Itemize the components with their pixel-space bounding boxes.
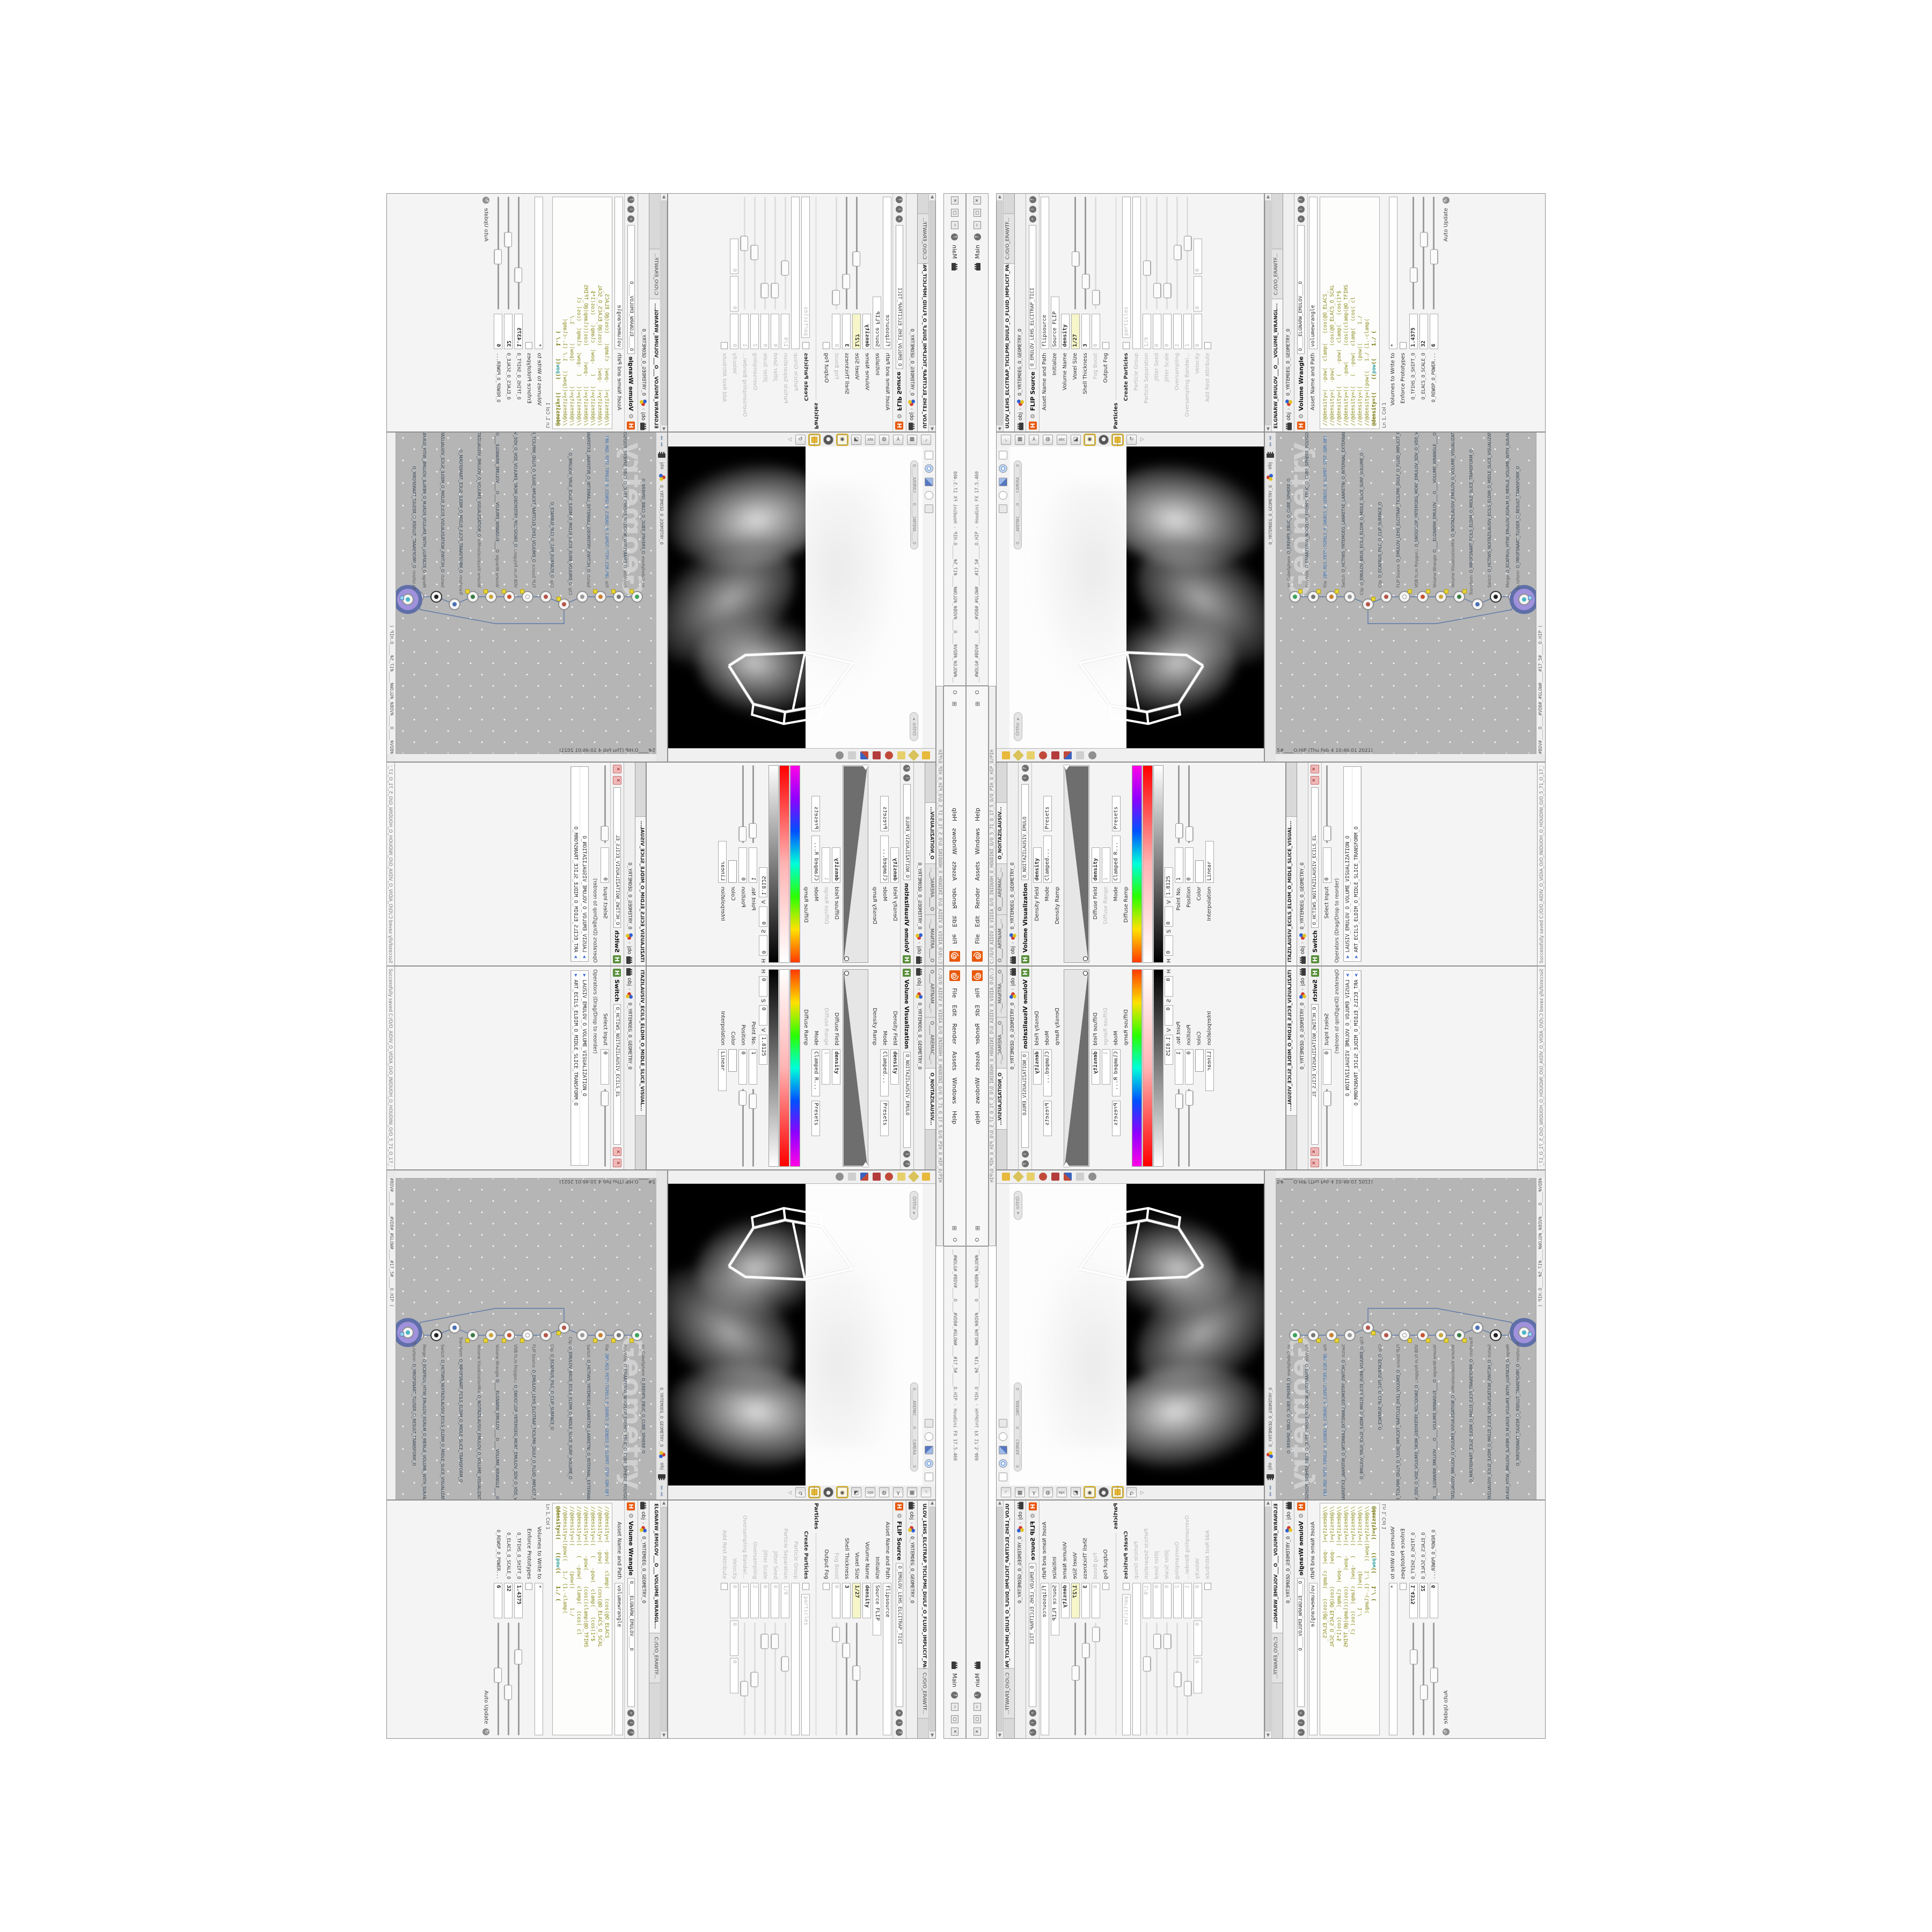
create-particles-checkbox[interactable] <box>802 1583 809 1590</box>
flag-icon[interactable] <box>1064 1173 1072 1181</box>
gold-pin-icon[interactable] <box>1002 751 1010 759</box>
position-slider[interactable] <box>742 1089 744 1167</box>
v-field[interactable]: 1.8125 <box>759 867 767 897</box>
network-breadcrumb-obj[interactable]: obj <box>659 1462 664 1470</box>
nav-arrows[interactable]: ⬆⬇ <box>1268 1484 1272 1496</box>
node-file[interactable]: FileJBO.M23.PETS:TGPOLS_O_5OURC5_O_GENUS… <box>1326 1329 1337 1341</box>
voxel-size-slider[interactable] <box>1074 196 1076 309</box>
scale-param-slider[interactable] <box>1423 1623 1424 1736</box>
switch-node-name-field[interactable]: O_HCTIWS_NOITAZILAUSIV_ECILS_EL <box>613 787 621 928</box>
s-field[interactable]: 0 <box>759 906 767 927</box>
grey-sphere-icon[interactable] <box>836 1173 844 1181</box>
pane-tab-path[interactable]: C:/O/O_ERAWTF... <box>918 1669 928 1719</box>
particle-separation-field[interactable]: 1/9 <box>781 1583 790 1619</box>
asset-name-field[interactable]: flipsource <box>883 196 892 349</box>
particle-separation-slider[interactable] <box>785 196 786 309</box>
view-cube-icon[interactable] <box>925 478 933 486</box>
jitter-scale-slider[interactable] <box>1166 1623 1168 1736</box>
info-icon[interactable]: i <box>1298 206 1305 213</box>
density-field-value[interactable]: density <box>1033 1049 1042 1085</box>
menu-windows[interactable]: Windows <box>974 828 981 854</box>
menu-assets[interactable]: Assets <box>952 1051 958 1071</box>
s-field[interactable]: 0 <box>1165 906 1173 927</box>
node-clip-2[interactable]: ClipO_ECAFRUS_PILC_O_CLIP_SURFACE_O <box>1380 591 1392 603</box>
shift-param-slider[interactable] <box>518 196 519 309</box>
node-vdb-from-polygons[interactable]: VDB from PolygonsO_SNOGYLOP_YRTEMOEG_MOR… <box>503 1329 515 1341</box>
network-breadcrumb-geometry[interactable]: O_YRTEMOEG_O_GEOMETRY_O <box>1268 485 1273 545</box>
density-mode-dropdown[interactable]: Clamped... <box>1043 836 1052 883</box>
delete-icon[interactable]: ✕ <box>1311 1147 1319 1156</box>
info-icon[interactable]: i <box>1298 1719 1305 1726</box>
search-icon[interactable]: ⌕ <box>1029 215 1036 222</box>
node-flip-source[interactable]: FLIP SourceO_EMULOV_LEHS_ELCITRAP_TICILP… <box>522 1329 533 1341</box>
view-mode-pill[interactable]: Ortho ▾ <box>1014 712 1022 741</box>
help-icon[interactable]: ? <box>896 1729 903 1736</box>
density-presets-button[interactable]: Presets <box>1043 796 1052 831</box>
uv-sphere-icon[interactable]: ◍ <box>1043 435 1053 445</box>
orbit-icon[interactable]: ↻ <box>795 1488 806 1498</box>
window-grid-icon[interactable]: ⊞ <box>974 1226 981 1231</box>
gear-icon[interactable]: ⚙ <box>628 413 635 419</box>
point-no-slider[interactable] <box>1178 765 1180 843</box>
operator-item[interactable]: ➤LAUSIV_EMULOV_O_VOLUME_VISUALIZATION_O <box>1344 767 1352 961</box>
file-path[interactable]: C:/O/O_AIDIV_O_VIDIA_O/O_INIDUOH_O_HOUDI… <box>936 966 943 1246</box>
node-vdb-from-polygons[interactable]: VDB from PolygonsO_SNOGYLOP_YRTEMOEG_MOR… <box>1417 1329 1429 1341</box>
volviz-node-name-field[interactable]: O_NOITAZILAUSIV_EMULO <box>903 1052 911 1148</box>
pane-tab-flip[interactable]: ULOV_LEHS_ELCITRAP_TICILPMI_DIULF_O_FLUI… <box>918 263 928 432</box>
node-flip-source[interactable]: FLIP SourceO_EMULOV_LEHS_ELCITRAP_TICILP… <box>1399 1329 1410 1341</box>
search-icon[interactable]: ⌕ <box>628 215 635 222</box>
output-fog-checkbox[interactable] <box>1102 342 1109 349</box>
gear-icon[interactable]: ⚙ <box>628 1513 635 1519</box>
pane-tab-flip[interactable]: ULOV_LEHS_ELCITRAP_TICILPMI_DIULF_O_FLUI… <box>1004 263 1014 432</box>
camera-pill[interactable]: O____AREMAC____O____CAMERA____O <box>1014 460 1022 550</box>
shift-param-slider[interactable] <box>1413 196 1414 309</box>
window-close-button[interactable]: ✕ <box>951 196 958 204</box>
volumes-to-write-field[interactable]: * <box>535 1583 544 1736</box>
position-field[interactable]: 0 <box>1185 847 1194 883</box>
menu-assets[interactable]: Assets <box>974 861 981 881</box>
gold-pin-icon[interactable] <box>1002 1173 1010 1181</box>
particles-field[interactable]: particles <box>1122 196 1131 338</box>
menu-windows[interactable]: Windows <box>974 1078 981 1104</box>
corner-pin-icon[interactable]: ▦ <box>907 1488 917 1498</box>
quad-view-icon[interactable] <box>809 435 819 445</box>
ease-curve-icon[interactable]: ◟ <box>1001 1488 1011 1498</box>
pane-tab-path[interactable]: C:/O/O_ERAWTF... <box>1272 1634 1283 1684</box>
pane-tab-camera[interactable]: O____AREMAC__... <box>996 1018 1007 1069</box>
delete-icon[interactable]: ✕ <box>613 776 621 785</box>
breadcrumb-obj[interactable]: obj <box>1300 946 1306 954</box>
window-grid-icon[interactable]: ⊞ <box>974 701 981 706</box>
pane-tab-camera[interactable]: O____AREMAC__... <box>925 863 936 915</box>
quad-view-icon[interactable] <box>1113 435 1123 445</box>
oversampling-bandwidth-field[interactable]: 1 <box>1183 313 1192 349</box>
info-icon[interactable]: i <box>1022 1151 1029 1158</box>
hue-ramp-bar[interactable] <box>1132 765 1142 963</box>
pin-icon[interactable] <box>925 504 933 513</box>
gold-pin-icon[interactable] <box>922 751 930 759</box>
node-transform-slice[interactable]: TransformO_MROFSNART_ECILS_ELDIM_O_MIDLE… <box>449 598 460 610</box>
jitter-scale-field[interactable]: 0 <box>1163 1583 1172 1619</box>
shell-thickness-slider[interactable] <box>1085 196 1086 309</box>
select-input-slider[interactable] <box>1326 765 1328 843</box>
info-icon[interactable]: i <box>1029 206 1036 213</box>
view-mode-pill[interactable]: Ortho ▾ <box>910 1191 918 1220</box>
density-ramp-widget[interactable] <box>1064 765 1089 963</box>
menu-edit[interactable]: Edit <box>952 1005 958 1016</box>
info-icon[interactable]: i <box>896 1719 903 1726</box>
wrangle-node-name-field[interactable]: O____ELGNARW_EMULOV____O <box>1297 1578 1305 1707</box>
network-scrollbar[interactable] <box>396 753 656 762</box>
window-minimize-button[interactable]: ─ <box>951 221 958 229</box>
breadcrumb-geometry[interactable]: O_YRTEMOEG_O_GEOMETRY_O <box>1286 1536 1291 1604</box>
interpolation-dropdown[interactable]: Linear <box>719 1049 727 1091</box>
voxel-size-field[interactable]: 1/27 <box>1071 1583 1080 1619</box>
quad-view-icon[interactable] <box>809 1488 819 1498</box>
add-rest-attribute-checkbox[interactable] <box>1204 342 1211 349</box>
nav-arrows[interactable]: ⬆⬇ <box>659 1484 664 1496</box>
search-icon[interactable]: ⌕ <box>896 1710 903 1717</box>
view-mode-pill[interactable]: Ortho ▾ <box>910 712 918 741</box>
vex-code-editor[interactable]: //@density=( -pow( clamp( (cos(@O_ELACS_… <box>1320 1503 1380 1736</box>
gear-icon[interactable]: ⚙ <box>896 413 903 419</box>
node-switch-geo[interactable]: SwitchO_HCTIWS_YRTEMOEG_LANRETXE_LANRETN… <box>1344 591 1356 603</box>
node-volviz-mix[interactable]: Volume VisualizationMixO_NOITAZILAUSIV_E… <box>1453 591 1465 603</box>
orbit-icon[interactable]: ↻ <box>795 435 806 445</box>
voxel-size-slider[interactable] <box>1074 1623 1076 1736</box>
node-volviz-mix[interactable]: Volume VisualizationMixO_NOITAZILAUSIV_E… <box>467 1329 479 1341</box>
jitter-seed-slider[interactable] <box>1156 196 1158 309</box>
menu-edit[interactable]: Edit <box>974 916 981 927</box>
fog-boost-field[interactable]: 0 <box>832 1583 841 1619</box>
jitter-scale-slider[interactable] <box>1166 196 1168 309</box>
info-icon[interactable]: i <box>1029 1719 1036 1726</box>
help-icon[interactable]: ? <box>974 1692 981 1699</box>
breadcrumb-geometry[interactable]: O_YRTEMOEG_O_GEOMETRY_O <box>909 328 914 396</box>
hue-ramp-bar[interactable] <box>790 765 800 963</box>
help-icon[interactable]: ? <box>628 196 635 203</box>
window-close-button[interactable]: ✕ <box>974 196 981 204</box>
node-switch-visualization[interactable]: SwitchO_HCTIWS_NOITAZILAUSIV_ECILS_ELDIM… <box>1490 591 1502 603</box>
auto-update-selector[interactable]: Auto Update <box>483 208 489 241</box>
breadcrumb-geometry[interactable]: O_YRTEMOEG_O_GEOMETRY_O <box>1010 862 1015 930</box>
diffuse-presets-button[interactable]: Presets <box>1112 1101 1121 1136</box>
oversampling-slider[interactable] <box>1176 1623 1178 1736</box>
target-icon[interactable] <box>925 491 933 500</box>
output-fog-checkbox[interactable] <box>823 342 830 349</box>
shelf-tab-main[interactable]: Main <box>974 1673 981 1687</box>
velocity-x-field[interactable]: 0 <box>730 1583 739 1619</box>
node-volviz-mix[interactable]: Volume VisualizationMixO_NOITAZILAUSIV_E… <box>1453 1329 1465 1341</box>
menu-render[interactable]: Render <box>952 1023 958 1044</box>
tripod-icon[interactable]: ⅄ <box>1029 435 1039 445</box>
scale-param-field[interactable]: 32 <box>1419 313 1428 349</box>
point-no-slider[interactable] <box>752 1089 754 1167</box>
scale-param-slider[interactable] <box>1423 196 1424 309</box>
toolbar-overflow-arrow[interactable]: ▷ <box>1140 1490 1144 1495</box>
volume-name-field[interactable]: density <box>863 313 872 349</box>
node-switch-geo[interactable]: SwitchO_HCTIWS_YRTEMOEG_LANRETXE_LANRETN… <box>576 1329 588 1341</box>
oversampling-bandwidth-field[interactable]: 1 <box>741 313 749 349</box>
node-cubesphere[interactable]: ao_CubeSphereO_EREHPS_EBUC_O_CUBE_SPHERE… <box>631 591 643 603</box>
gold-diamond-icon[interactable] <box>1013 1171 1024 1182</box>
menu-assets[interactable]: Assets <box>952 861 958 881</box>
grey-sphere-icon[interactable] <box>836 751 844 759</box>
voxel-size-field[interactable]: 1/27 <box>853 313 861 349</box>
viewport-render-area[interactable]: O____AREMAC____O____CAMERA____O Ortho ▾ <box>668 1183 923 1485</box>
breadcrumb-obj[interactable]: obj <box>627 946 633 954</box>
corner-pin-icon[interactable]: ▦ <box>1015 435 1025 445</box>
velocity-y-field[interactable]: 0 <box>730 276 739 311</box>
color-swatch[interactable] <box>729 1049 737 1072</box>
network-graph-area[interactable]: Geometry ao_CubeSphereO_EREHPS_EBUC_O_CU… <box>396 1178 656 1499</box>
select-input-field[interactable]: 0 <box>1323 1049 1331 1085</box>
oversampling-field[interactable]: 2 <box>1173 313 1182 349</box>
node-switch-visualization[interactable]: SwitchO_HCTIWS_NOITAZILAUSIV_ECILS_ELDIM… <box>1490 1329 1502 1341</box>
breadcrumb-geometry[interactable]: O_YRTEMOEG_O_GEOMETRY_O <box>909 1536 914 1604</box>
menu-assets[interactable]: Assets <box>974 1051 981 1071</box>
diffuse-mode-dropdown[interactable]: Clamped R... <box>812 1049 821 1096</box>
orbit-rings-icon[interactable] <box>999 1459 1007 1468</box>
node-clip-1[interactable]: ClipO_EMULOV_BRUS_ECILS_ELDIM_O_MIDLE_SL… <box>1362 598 1374 610</box>
render-eye-icon[interactable]: ◉ <box>837 435 847 445</box>
point-no-field[interactable]: 1 <box>1175 1049 1183 1085</box>
window-grid-icon[interactable]: ⊞ <box>952 1226 958 1231</box>
value-ramp-bar[interactable] <box>1153 765 1163 963</box>
red-gears-icon[interactable] <box>885 1173 893 1181</box>
network-breadcrumb-obj[interactable]: obj <box>1268 1462 1273 1470</box>
saturation-ramp-bar[interactable] <box>779 765 789 963</box>
help-icon[interactable]: ? <box>1029 1729 1036 1736</box>
jitter-seed-slider[interactable] <box>774 196 776 309</box>
point-no-field[interactable]: 1 <box>1175 847 1183 883</box>
node-result-transform[interactable]: TransformO_MROFSNART_TLUSER_O_RESULT_TRA… <box>402 594 414 605</box>
node-volume-wrangle[interactable]: Volume WrangleO____ELGNARW_EMULOV____O__… <box>485 1329 497 1341</box>
particles-field[interactable]: particles <box>802 1594 810 1736</box>
velocity-y-field[interactable]: 0 <box>1194 1621 1202 1656</box>
node-clip-1[interactable]: ClipO_EMULOV_BRUS_ECILS_ELDIM_O_MIDLE_SL… <box>1362 1322 1374 1334</box>
abc-label-icon[interactable]: abc <box>1057 1488 1067 1498</box>
file-path[interactable]: C:/O/O_AIDIV_O_VIDIA_O/O_INIDUOH_O_HOUDI… <box>989 966 996 1246</box>
help-icon[interactable]: ? <box>904 765 911 772</box>
help-icon[interactable]: ? <box>952 1692 958 1699</box>
operator-item[interactable]: ➤LAUSIV_EMULOV_O_VOLUME_VISUALIZATION_O <box>1344 971 1352 1165</box>
velocity-y-field[interactable]: 0 <box>1194 276 1202 311</box>
camera-pill[interactable]: O____AREMAC____O____CAMERA____O <box>910 460 918 550</box>
node-volviz-mix[interactable]: Volume VisualizationMixO_NOITAZILAUSIV_E… <box>467 591 479 603</box>
menu-help[interactable]: Help <box>974 1111 981 1124</box>
oversampling-bandwidth-field[interactable]: 1 <box>741 1583 749 1619</box>
view-cube-icon[interactable] <box>925 1446 933 1454</box>
oversampling-bandwidth-field[interactable]: 1 <box>1183 1583 1192 1619</box>
saturation-ramp-bar[interactable] <box>779 969 789 1167</box>
diffuse-range-value[interactable]: 1 <box>822 1049 831 1085</box>
node-result-transform[interactable]: TransformO_MROFSNART_TLUSER_O_RESULT_TRA… <box>1518 1327 1530 1338</box>
help-icon[interactable]: ? <box>1298 1729 1305 1736</box>
network-breadcrumb-geometry[interactable]: O_YRTEMOEG_O_GEOMETRY_O <box>1268 1387 1273 1447</box>
pane-tab-mantra[interactable]: O____ARTNAM__... <box>925 914 936 966</box>
target-icon[interactable] <box>999 491 1007 500</box>
breadcrumb-geometry[interactable]: O_YRTEMOEG_O_GEOMETRY_O <box>1286 328 1291 396</box>
gear-icon[interactable]: ⚙ <box>1029 1513 1036 1519</box>
ease-curve-icon[interactable]: ◟ <box>921 1488 931 1498</box>
node-polywire[interactable]: PolyWireO_EMARFERIW_NOGYLOP_EREHPS_EBUC_… <box>613 1329 625 1341</box>
view-cube-icon[interactable] <box>999 1446 1007 1454</box>
particle-group-field[interactable] <box>1132 1583 1141 1736</box>
file-path[interactable]: C:/O/O_AIDIV_O_VIDIA_O/O_INIDUOH_O_HOUDI… <box>989 686 996 966</box>
node-transform-slice[interactable]: TransformO_MROFSNART_ECILS_ELDIM_O_MIDLE… <box>1472 598 1483 610</box>
select-box-icon[interactable] <box>925 1473 933 1481</box>
node-clip-1[interactable]: ClipO_EMULOV_BRUS_ECILS_ELDIM_O_MIDLE_SL… <box>558 1322 570 1334</box>
breadcrumb-obj[interactable]: obj <box>1010 978 1016 986</box>
breadcrumb-obj[interactable]: obj <box>1286 1512 1292 1520</box>
create-particles-checkbox[interactable] <box>1123 342 1130 349</box>
fog-boost-field[interactable]: 0 <box>1092 313 1100 349</box>
volviz-node-name-field[interactable]: O_NOITAZILAUSIV_EMULO <box>903 784 911 881</box>
red-gears-icon[interactable] <box>1039 1173 1047 1181</box>
pane-tab-camera[interactable]: O____AREMAC__... <box>925 1018 936 1069</box>
density-mode-dropdown[interactable]: Clamped... <box>881 1049 889 1096</box>
pane-tab-visualization[interactable]: O_NOITAZILAUSIV... <box>996 802 1007 863</box>
operator-item[interactable]: ➤ART_ECILS_ELDIM_O_MIDLE_SLICE_TRANSFORM… <box>571 971 580 1165</box>
snapshot-icon[interactable]: ◪ <box>851 1488 861 1498</box>
node-file[interactable]: FileJBO.M23.PETS:TGPOLS_O_5OURC5_O_GENUS… <box>595 591 606 603</box>
vex-code-editor[interactable]: //@density=( -pow( clamp( (cos(@O_ELACS_… <box>552 1503 612 1736</box>
fog-boost-slider[interactable] <box>1095 1623 1096 1736</box>
density-presets-button[interactable]: Presets <box>881 1101 889 1136</box>
network-graph-area[interactable]: Geometry ao_CubeSphereO_EREHPS_EBUC_O_CU… <box>1276 433 1536 754</box>
select-input-field[interactable]: 0 <box>601 1049 610 1085</box>
delete-icon[interactable]: ✕ <box>1311 1159 1319 1167</box>
select-box-icon[interactable] <box>999 1473 1007 1481</box>
particle-separation-slider[interactable] <box>1146 1623 1147 1736</box>
menu-file[interactable]: File <box>974 988 981 998</box>
density-mode-dropdown[interactable]: Clamped... <box>881 836 889 883</box>
orbit-rings-icon[interactable] <box>925 1459 933 1468</box>
h-field[interactable]: 0 <box>1165 976 1173 997</box>
node-flip-source[interactable]: FLIP SourceO_EMULOV_LEHS_ELCITRAP_TICILP… <box>1399 591 1410 603</box>
menu-windows[interactable]: Windows <box>952 828 958 854</box>
help-icon[interactable]: ? <box>904 1160 911 1167</box>
density-field-value[interactable]: density <box>1033 847 1042 883</box>
particle-separation-field[interactable]: 1/9 <box>1143 313 1151 349</box>
node-result-transform[interactable]: TransformO_MROFSNART_TLUSER_O_RESULT_TRA… <box>402 1327 414 1338</box>
power-param-slider[interactable] <box>1433 196 1435 309</box>
oversampling-bandwidth-slider[interactable] <box>1187 196 1188 309</box>
fog-boost-slider[interactable] <box>836 196 837 309</box>
oversampling-field[interactable]: 2 <box>751 313 759 349</box>
node-flip-source[interactable]: FLIP SourceO_EMULOV_LEHS_ELCITRAP_TICILP… <box>522 591 533 603</box>
saturation-ramp-bar[interactable] <box>1143 969 1153 1167</box>
node-switch-geo[interactable]: SwitchO_HCTIWS_YRTEMOEG_LANRETXE_LANRETN… <box>576 591 588 603</box>
enforce-prototypes-checkbox[interactable] <box>1400 342 1407 349</box>
target-icon[interactable] <box>925 1432 933 1441</box>
oversampling-slider[interactable] <box>754 1623 756 1736</box>
red-camera-icon[interactable] <box>873 1173 881 1181</box>
node-clip-2[interactable]: ClipO_ECAFRUS_PILC_O_CLIP_SURFACE_O <box>540 591 552 603</box>
shell-thickness-field[interactable]: 3 <box>843 1583 851 1619</box>
create-particles-checkbox[interactable] <box>802 342 809 349</box>
node-switch-visualization[interactable]: SwitchO_HCTIWS_NOITAZILAUSIV_ECILS_ELDIM… <box>430 591 442 603</box>
pane-scrollbar[interactable]: ◀▶ <box>928 193 936 432</box>
help-icon[interactable]: ? <box>952 233 958 240</box>
pin-icon[interactable] <box>999 1419 1007 1428</box>
file-path[interactable]: C:/O/O_AIDIV_O_VIDIA_O/O_INIDUOH_O_HOUDI… <box>936 686 943 966</box>
diffuse-mode-dropdown[interactable]: Clamped R... <box>1112 836 1121 883</box>
shift-param-field[interactable]: 1.4375 <box>1409 313 1418 349</box>
delete-icon[interactable]: ✕ <box>613 1147 621 1156</box>
ease-curve-icon[interactable]: ◟ <box>1001 435 1011 445</box>
info-icon[interactable]: i <box>628 1719 635 1726</box>
pane-tab-wrangle[interactable]: ELGNARW_EMULOV___O___VOLUME_WRANGL... <box>1272 299 1283 433</box>
scale-param-field[interactable]: 32 <box>1419 1583 1428 1619</box>
window-maximize-button[interactable]: ▢ <box>951 1715 958 1723</box>
density-presets-button[interactable]: Presets <box>1043 1101 1052 1136</box>
add-rest-attribute-checkbox[interactable] <box>721 1583 728 1590</box>
node-volume-wrangle[interactable]: Volume WrangleO____ELGNARW_EMULOV____O__… <box>485 591 497 603</box>
info-icon[interactable]: i <box>904 1151 911 1158</box>
h-field[interactable]: 0 <box>759 935 767 956</box>
particles-field[interactable]: particles <box>1122 1594 1131 1736</box>
tripod-icon[interactable]: ⅄ <box>1029 1488 1039 1498</box>
pane-tab-visualization[interactable]: O_NOITAZILAUSIV... <box>925 802 936 863</box>
window-grid-icon[interactable]: ⊞ <box>952 701 958 706</box>
delete-icon[interactable]: ✕ <box>613 1159 621 1167</box>
dark-sphere-icon[interactable]: ● <box>823 1488 833 1498</box>
breadcrumb-obj[interactable]: obj <box>1010 946 1016 954</box>
oversampling-bandwidth-slider[interactable] <box>744 1623 745 1736</box>
gear-icon[interactable]: ⚙ <box>896 1513 903 1519</box>
abc-label-icon[interactable]: abc <box>865 1488 875 1498</box>
diffuse-range-value[interactable]: 1 <box>822 847 831 883</box>
yellow-folder-icon[interactable] <box>897 751 905 759</box>
density-ramp-widget[interactable] <box>843 969 868 1167</box>
breadcrumb-obj[interactable]: obj <box>1286 412 1292 420</box>
shelf-tab-main[interactable]: Main <box>952 245 958 259</box>
h-field[interactable]: 0 <box>759 976 767 997</box>
menu-file[interactable]: File <box>974 934 981 944</box>
interpolation-dropdown[interactable]: Linear <box>719 841 727 883</box>
pane-tab-flip[interactable]: ULOV_LEHS_ELCITRAP_TICILPMI_DIULF_O_FLUI… <box>918 1500 928 1669</box>
node-polywire[interactable]: PolyWireO_EMARFERIW_NOGYLOP_EREHPS_EBUC_… <box>1307 591 1319 603</box>
camera-pill[interactable]: O____AREMAC____O____CAMERA____O <box>910 1382 918 1472</box>
red-camera-icon[interactable] <box>1051 751 1059 759</box>
jitter-scale-field[interactable]: 0 <box>761 313 770 349</box>
shell-thickness-slider[interactable] <box>1085 1623 1086 1736</box>
breadcrumb-obj[interactable]: obj <box>627 978 633 986</box>
velocity-z-field[interactable]: 0 <box>730 1658 739 1694</box>
output-fog-checkbox[interactable] <box>1102 1583 1109 1590</box>
clipboard-icon[interactable] <box>848 751 856 759</box>
ease-curve-icon[interactable]: ◟ <box>921 435 931 445</box>
node-polywire[interactable]: PolyWireO_EMARFERIW_NOGYLOP_EREHPS_EBUC_… <box>613 591 625 603</box>
oversampling-field[interactable]: 2 <box>1173 1583 1182 1619</box>
pin-icon[interactable] <box>925 1419 933 1428</box>
help-icon[interactable]: ? <box>896 196 903 203</box>
volumes-to-write-field[interactable]: * <box>535 196 544 349</box>
shell-thickness-slider[interactable] <box>846 1623 847 1736</box>
density-presets-button[interactable]: Presets <box>881 796 889 831</box>
asset-name-field[interactable]: flipsource <box>1041 196 1049 349</box>
power-param-slider[interactable] <box>497 1623 499 1736</box>
breadcrumb-obj[interactable]: obj <box>909 412 915 420</box>
clipboard-icon[interactable] <box>1076 1173 1084 1181</box>
pane-tab-path[interactable]: C:/O/O_ERAWTF... <box>1004 213 1014 263</box>
breadcrumb-obj[interactable]: obj <box>917 946 923 954</box>
node-file[interactable]: FileJBO.M23.PETS:TGPOLS_O_5OURC5_O_GENUS… <box>1326 591 1337 603</box>
menu-help[interactable]: Help <box>974 808 981 821</box>
